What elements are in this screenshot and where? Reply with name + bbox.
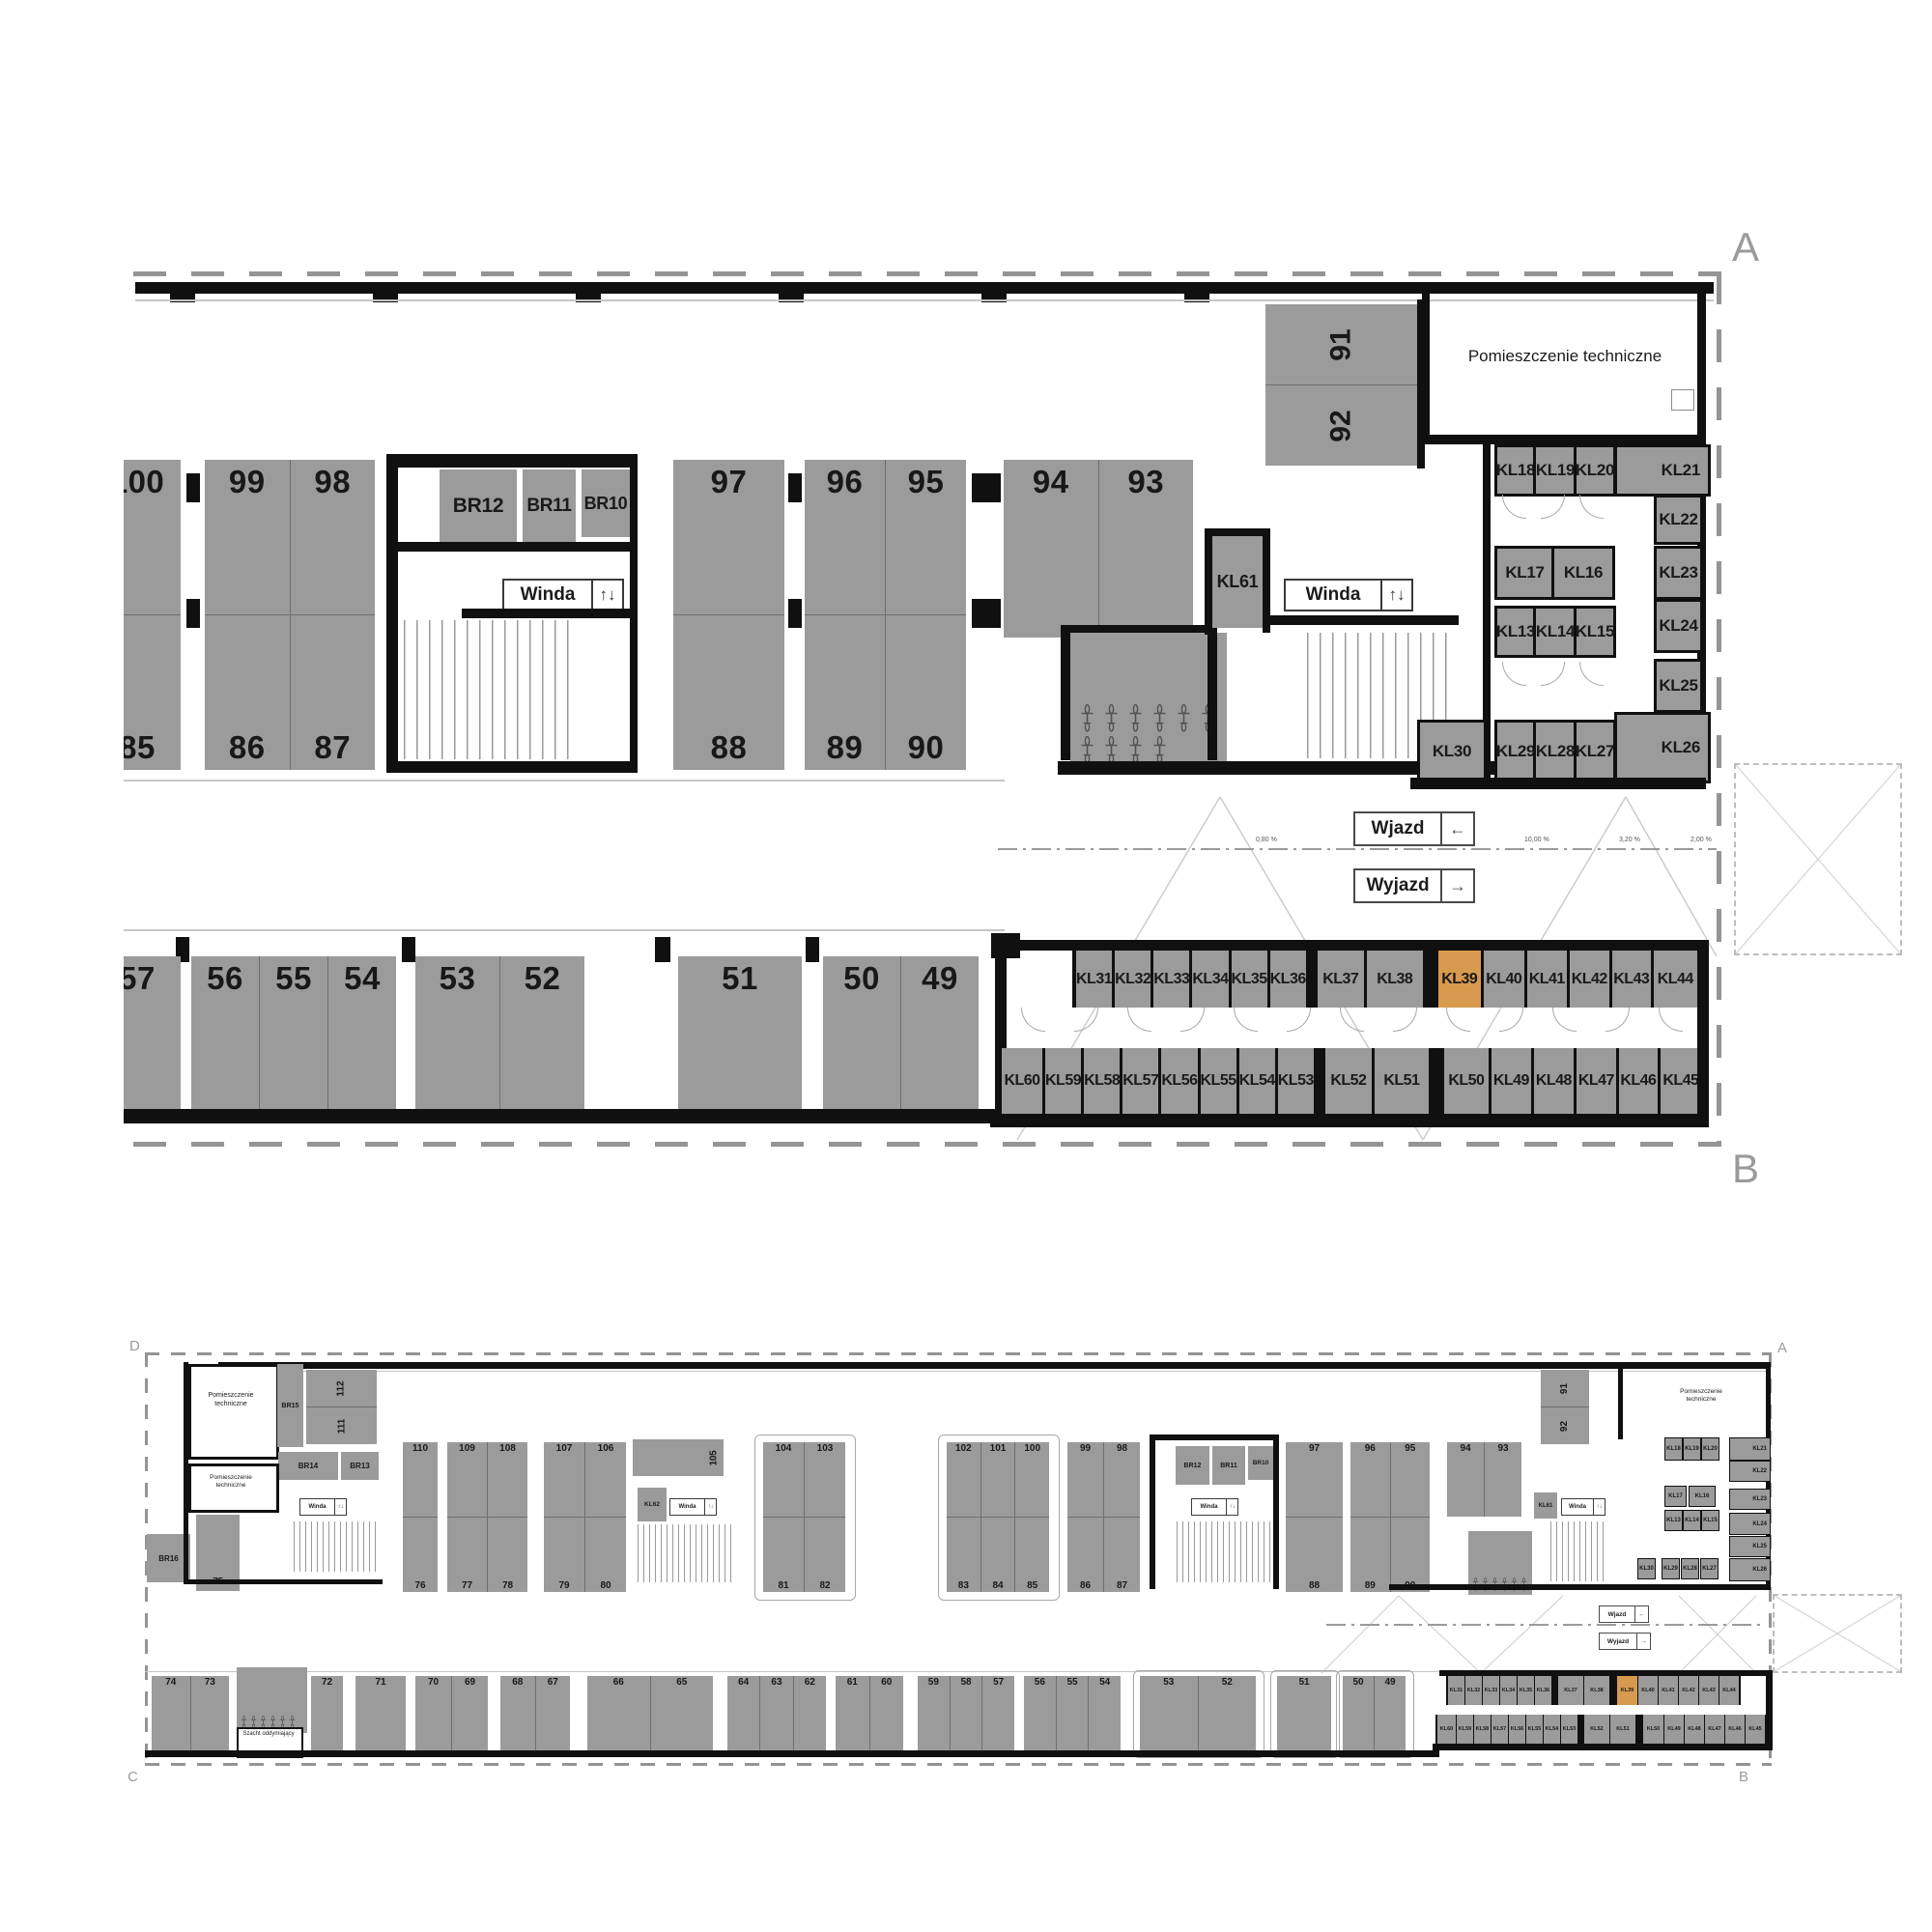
unit-kl18[interactable]: KL18 — [1494, 444, 1537, 497]
cell-kl45[interactable]: KL45 — [1661, 1048, 1701, 1114]
kl-block-bottom-wall — [990, 1114, 1706, 1127]
ramp-percent: 2,00 % — [1690, 837, 1712, 843]
pier — [788, 473, 802, 502]
storage-br12[interactable]: BR12 — [440, 469, 517, 542]
ov-island-109-108: 109108 7778 — [447, 1442, 527, 1592]
cell-kl43[interactable]: KL43 — [1612, 951, 1651, 1008]
unit-kl20[interactable]: KL20 — [1574, 444, 1616, 497]
ov-kl29[interactable]: KL29 — [1662, 1558, 1680, 1579]
ov-kl30[interactable]: KL30 — [1637, 1558, 1656, 1579]
elevator-arrows-icon: ↑↓ — [334, 1499, 346, 1515]
ov-br14[interactable]: BR14 — [278, 1452, 338, 1480]
cell-89[interactable]: 89 — [1350, 1518, 1390, 1592]
cell-kl44[interactable]: KL44 — [1654, 951, 1697, 1008]
cell-73[interactable]: 73 — [190, 1676, 230, 1750]
cell-69[interactable]: 69 — [451, 1676, 488, 1750]
cell-54[interactable]: 54 — [1088, 1676, 1121, 1750]
ov-kl-row-upper: KL31KL32KL33KL34KL35KL36KL37KL38KL39KL40… — [1446, 1676, 1741, 1705]
cell-63[interactable]: 63 — [759, 1676, 792, 1750]
cell-87[interactable]: 87 — [290, 615, 376, 770]
stall-91[interactable]: 91 — [1265, 304, 1417, 384]
cell-74[interactable]: 74 — [152, 1676, 190, 1750]
cell-94[interactable]: 94 — [1447, 1442, 1484, 1517]
stall-label: 112 — [336, 1380, 347, 1396]
cell-kl59[interactable]: KL59 — [1045, 1048, 1081, 1114]
ov-b-50-49: 5049 — [1343, 1676, 1406, 1750]
ov-b-70-69: 7069 — [415, 1676, 488, 1750]
door-arc — [1446, 1008, 1470, 1032]
cell-kl42[interactable]: KL42 — [1679, 1676, 1698, 1705]
cell-49[interactable]: 49 — [900, 956, 979, 1109]
cell-kl34[interactable]: KL34 — [1192, 951, 1228, 1008]
ov-stall-111[interactable]: 111 — [306, 1406, 377, 1444]
elevator-arrows-icon: ↑↓ — [1380, 581, 1411, 610]
door-arc — [1541, 495, 1565, 519]
section-letter-b: B — [1732, 1146, 1759, 1192]
cell-84[interactable]: 84 — [980, 1518, 1015, 1592]
storage-kl61[interactable]: KL61 — [1212, 536, 1263, 628]
cell-kl32[interactable]: KL32 — [1115, 951, 1151, 1008]
cell-kl41[interactable]: KL41 — [1659, 1676, 1678, 1705]
ov-b-56-54: 565554 — [1024, 1676, 1121, 1750]
core-wall — [1205, 528, 1270, 536]
cell-kl57[interactable]: KL57 — [1122, 1048, 1158, 1114]
cell-kl49[interactable]: KL49 — [1664, 1715, 1684, 1744]
stall-island-91-92: 91 92 — [1265, 304, 1417, 466]
cell-kl39[interactable]: KL39 — [1438, 951, 1481, 1008]
cell-51[interactable]: 51 — [1277, 1676, 1331, 1750]
ov-stall-92[interactable]: 92 — [1541, 1406, 1589, 1444]
ov-entry-gate[interactable]: Wjazd ← — [1599, 1605, 1649, 1623]
cell-76[interactable]: 76 — [403, 1518, 438, 1592]
cell-99[interactable]: 99 — [1067, 1442, 1103, 1517]
cell-kl32[interactable]: KL32 — [1465, 1676, 1482, 1705]
cell-107[interactable]: 107 — [544, 1442, 584, 1517]
cell-kl53[interactable]: KL53 — [1561, 1715, 1577, 1744]
cell-80[interactable]: 80 — [584, 1518, 626, 1592]
cell-kl35[interactable]: KL35 — [1232, 951, 1267, 1008]
cell-kl51[interactable]: KL51 — [1375, 1048, 1429, 1114]
cell-101[interactable]: 101 — [980, 1442, 1015, 1517]
ov-b-64-62: 646362 — [727, 1676, 826, 1750]
cell-89[interactable]: 89 — [805, 615, 885, 770]
door-arc — [1502, 662, 1526, 686]
section-letter-b-ov: B — [1739, 1769, 1748, 1785]
cell-kl44[interactable]: KL44 — [1719, 1676, 1739, 1705]
cell-50[interactable]: 50 — [1343, 1676, 1374, 1750]
ov-br11[interactable]: BR11 — [1212, 1446, 1245, 1485]
ov-tech-room-1-label: Pomieszczenie techniczne — [197, 1391, 265, 1408]
door-arc — [1074, 1008, 1098, 1032]
ov-b-51: 51 — [1277, 1676, 1331, 1750]
exit-arrow-icon: → — [1440, 870, 1473, 901]
ov-dash-bottom — [145, 1763, 1772, 1766]
unit-kl28[interactable]: KL28 — [1533, 720, 1577, 783]
cell-kl35[interactable]: KL35 — [1518, 1676, 1534, 1705]
ov-kl22[interactable]: KL22 — [1729, 1461, 1771, 1482]
bike-room-wall — [1207, 625, 1217, 760]
ov-kl28[interactable]: KL28 — [1681, 1558, 1699, 1579]
ramp-centerline — [998, 848, 1717, 850]
wall-fixture-icon — [1671, 389, 1694, 411]
cell-51[interactable]: 51 — [678, 956, 802, 1109]
unit-kl17[interactable]: KL17 — [1494, 546, 1555, 600]
cell-kl37[interactable]: KL37 — [1318, 951, 1364, 1008]
cell-kl33[interactable]: KL33 — [1483, 1676, 1499, 1705]
cell-53[interactable]: 53 — [1140, 1676, 1198, 1750]
cell-77[interactable]: 77 — [447, 1518, 487, 1592]
cell-kl36[interactable]: KL36 — [1270, 951, 1306, 1008]
ov-kl18[interactable]: KL18 — [1664, 1437, 1683, 1461]
cell-56[interactable]: 56 — [191, 956, 259, 1109]
cell-kl46[interactable]: KL46 — [1619, 1048, 1658, 1114]
stall-label: 92 — [1560, 1420, 1571, 1431]
cell-86[interactable]: 86 — [1067, 1518, 1103, 1592]
pier — [806, 937, 819, 962]
cell-70[interactable]: 70 — [415, 1676, 451, 1750]
cell-99[interactable]: 99 — [205, 460, 290, 614]
cell-kl53[interactable]: KL53 — [1278, 1048, 1314, 1114]
cell-59[interactable]: 59 — [918, 1676, 950, 1750]
cell-64[interactable]: 64 — [727, 1676, 759, 1750]
cell-79[interactable]: 79 — [544, 1518, 584, 1592]
cell-104[interactable]: 104 — [763, 1442, 804, 1517]
ov-tech-room-3-label: Pomieszczenie techniczne — [1669, 1388, 1733, 1405]
ov-core3-wall — [1150, 1435, 1279, 1440]
elevator-label: Winda — [300, 1499, 334, 1515]
ov-br12[interactable]: BR12 — [1176, 1446, 1209, 1485]
bike-room-wall — [1061, 625, 1215, 633]
pier — [972, 599, 1001, 628]
cell-kl41[interactable]: KL41 — [1527, 951, 1567, 1008]
cell-54[interactable]: 54 — [327, 956, 396, 1109]
door-arc — [1021, 1008, 1045, 1032]
ov-br13[interactable]: BR13 — [341, 1452, 379, 1480]
ramp-outside-box — [1734, 763, 1902, 955]
cell-kl54[interactable]: KL54 — [1544, 1715, 1560, 1744]
cell-81[interactable]: 81 — [763, 1518, 804, 1592]
elevator-label: Winda — [1192, 1499, 1226, 1515]
cell-68[interactable]: 68 — [500, 1676, 535, 1750]
unit-kl23[interactable]: KL23 — [1654, 546, 1703, 600]
core-wall — [1263, 536, 1270, 633]
corridor-arcs — [1494, 662, 1610, 705]
cell-65[interactable]: 65 — [650, 1676, 714, 1750]
cell-kl39[interactable]: KL39 — [1617, 1676, 1637, 1705]
wall-spacer — [1552, 1676, 1557, 1705]
cell-kl47[interactable]: KL47 — [1705, 1715, 1724, 1744]
ov-kl26[interactable]: KL26 — [1729, 1558, 1771, 1581]
ov-stall-105[interactable]: 105 — [633, 1439, 724, 1476]
unit-kl24[interactable]: KL24 — [1654, 599, 1703, 653]
ov-core3-wall — [1273, 1435, 1279, 1589]
cell-kl52[interactable]: KL52 — [1584, 1715, 1609, 1744]
ov-kl-right-wall — [1766, 1670, 1773, 1750]
ov-island-97: 97 88 — [1286, 1442, 1343, 1592]
bicycle-icon — [1128, 736, 1143, 764]
ov-stalls-91-92: 91 92 — [1541, 1370, 1589, 1444]
cell-108[interactable]: 108 — [487, 1442, 527, 1517]
cell-kl55[interactable]: KL55 — [1201, 1048, 1236, 1114]
ov-kl20[interactable]: KL20 — [1701, 1437, 1719, 1461]
cell-102[interactable]: 102 — [947, 1442, 980, 1517]
cell-kl47[interactable]: KL47 — [1577, 1048, 1616, 1114]
cell-kl45[interactable]: KL45 — [1746, 1715, 1765, 1744]
entry-arrow-icon: ← — [1634, 1606, 1648, 1622]
ov-kl62[interactable]: KL62 — [638, 1488, 667, 1521]
door-arc — [1234, 1008, 1258, 1032]
cell-93[interactable]: 93 — [1484, 1442, 1521, 1517]
elevator-label: Winda — [670, 1499, 704, 1515]
cell-88[interactable]: 88 — [1286, 1518, 1343, 1592]
bicycle-icon — [1104, 736, 1119, 764]
kl-block-top-wall — [995, 940, 1706, 951]
cell-85[interactable]: 85 — [124, 615, 181, 770]
unit-kl21[interactable]: KL21 — [1614, 444, 1711, 497]
cell-kl57[interactable]: KL57 — [1492, 1715, 1508, 1744]
cell-kl46[interactable]: KL46 — [1725, 1715, 1745, 1744]
cell-96[interactable]: 96 — [1350, 1442, 1390, 1517]
cell-97[interactable]: 97 — [673, 460, 784, 614]
ov-b-74-73: 7473 — [152, 1676, 229, 1750]
cell-kl48[interactable]: KL48 — [1685, 1715, 1704, 1744]
corridor-arcs — [1494, 495, 1610, 533]
cell-67[interactable]: 67 — [535, 1676, 571, 1750]
door-arc — [1393, 1008, 1417, 1032]
cell-82[interactable]: 82 — [804, 1518, 845, 1592]
tech-room-wall — [1422, 435, 1490, 444]
ov-kl24[interactable]: KL24 — [1729, 1513, 1771, 1535]
cell-kl60[interactable]: KL60 — [1437, 1715, 1456, 1744]
cell-kl55[interactable]: KL55 — [1526, 1715, 1543, 1744]
cell-kl49[interactable]: KL49 — [1492, 1048, 1531, 1114]
cell-kl37[interactable]: KL37 — [1558, 1676, 1583, 1705]
ov-kl23[interactable]: KL23 — [1729, 1489, 1771, 1510]
elevator-arrows-icon: ↑↓ — [1593, 1499, 1605, 1515]
cell-58[interactable]: 58 — [950, 1676, 982, 1750]
door-arc — [1180, 1008, 1205, 1032]
cell-86[interactable]: 86 — [205, 615, 290, 770]
cell-55[interactable]: 55 — [259, 956, 327, 1109]
cell-78[interactable]: 78 — [487, 1518, 527, 1592]
stall-island-96-95: 9695 8990 — [805, 460, 966, 770]
stall-label: 105 — [709, 1450, 720, 1465]
ov-top-wall — [218, 1362, 1771, 1369]
cell-96[interactable]: 96 — [805, 460, 885, 614]
ov-kl27[interactable]: KL27 — [1700, 1558, 1719, 1579]
unit-kl16[interactable]: KL16 — [1551, 546, 1615, 600]
cell-62[interactable]: 62 — [793, 1676, 826, 1750]
unit-kl14[interactable]: KL14 — [1533, 606, 1577, 658]
cell-93[interactable]: 93 — [1098, 460, 1194, 638]
cell-71[interactable]: 71 — [355, 1676, 406, 1750]
ov-kl14[interactable]: KL14 — [1683, 1510, 1701, 1531]
ov-elevator-1[interactable]: Winda ↑↓ — [299, 1498, 347, 1516]
ov-exit-gate[interactable]: Wyjazd → — [1599, 1633, 1651, 1650]
bike-room — [1070, 633, 1227, 774]
cell-kl38[interactable]: KL38 — [1584, 1676, 1609, 1705]
cell-kl52[interactable]: KL52 — [1325, 1048, 1372, 1114]
cell-110[interactable]: 110 — [403, 1442, 438, 1517]
cell-kl40[interactable]: KL40 — [1484, 951, 1524, 1008]
cell-kl31[interactable]: KL31 — [1448, 1676, 1464, 1705]
wall-spacer — [1432, 1048, 1441, 1114]
exit-gate[interactable]: Wyjazd → — [1353, 868, 1475, 903]
cell-kl60[interactable]: KL60 — [1002, 1048, 1042, 1114]
unit-kl19[interactable]: KL19 — [1533, 444, 1577, 497]
ov-island-104-103: 104103 8182 — [763, 1442, 845, 1592]
cell-kl33[interactable]: KL33 — [1153, 951, 1189, 1008]
cell-60[interactable]: 60 — [869, 1676, 904, 1750]
door-arc — [1659, 1008, 1683, 1032]
cell-57[interactable]: 57 — [124, 956, 181, 1109]
elevator-arrows-icon: ↑↓ — [1226, 1499, 1237, 1515]
cell-98[interactable]: 98 — [1103, 1442, 1140, 1517]
cell-55[interactable]: 55 — [1056, 1676, 1089, 1750]
cell-103[interactable]: 103 — [804, 1442, 845, 1517]
overview-plan: D A C B Pomieszczenie techniczne BR15 11… — [124, 1338, 1793, 1797]
cell-52[interactable]: 52 — [1198, 1676, 1257, 1750]
unit-kl13[interactable]: KL13 — [1494, 606, 1537, 658]
unit-kl27[interactable]: KL27 — [1574, 720, 1616, 783]
ov-kl16[interactable]: KL16 — [1689, 1486, 1716, 1507]
entry-label: Wjazd — [1600, 1606, 1634, 1622]
cell-kl56[interactable]: KL56 — [1161, 1048, 1197, 1114]
wall-spacer — [1426, 951, 1435, 1008]
cell-90[interactable]: 90 — [1390, 1518, 1431, 1592]
boundary-dash-top — [133, 271, 1718, 276]
cell-kl43[interactable]: KL43 — [1699, 1676, 1719, 1705]
unit-kl15[interactable]: KL15 — [1574, 606, 1616, 658]
cell-kl40[interactable]: KL40 — [1638, 1676, 1658, 1705]
cell-52[interactable]: 52 — [499, 956, 584, 1109]
pier — [788, 599, 802, 628]
stall-island-51: 51 — [678, 956, 802, 1109]
ov-b-68-67: 6867 — [500, 1676, 570, 1750]
cell-109[interactable]: 109 — [447, 1442, 487, 1517]
cell-kl50[interactable]: KL50 — [1444, 1048, 1489, 1114]
tech-room-label: Pomieszczenie techniczne — [1459, 346, 1671, 368]
ov-stairs-3 — [1177, 1521, 1273, 1582]
ov-stall-112[interactable]: 112 — [306, 1370, 377, 1406]
cell-kl42[interactable]: KL42 — [1570, 951, 1609, 1008]
ov-br15[interactable]: BR15 — [277, 1364, 303, 1447]
ov-wall — [184, 1579, 383, 1584]
cell-kl51[interactable]: KL51 — [1610, 1715, 1635, 1744]
cell-66[interactable]: 66 — [587, 1676, 650, 1750]
cell-kl34[interactable]: KL34 — [1500, 1676, 1517, 1705]
cell-50[interactable]: 50 — [823, 956, 900, 1109]
cell-61[interactable]: 61 — [836, 1676, 869, 1750]
ov-kl17[interactable]: KL17 — [1664, 1486, 1687, 1507]
cell-kl59[interactable]: KL59 — [1457, 1715, 1473, 1744]
kl-corridor — [1007, 1008, 1697, 1048]
cell-kl38[interactable]: KL38 — [1367, 951, 1423, 1008]
stall-island-100-85: 100 85 — [124, 460, 181, 770]
ov-stall-91[interactable]: 91 — [1541, 1370, 1589, 1406]
cell-100[interactable]: 100 — [1014, 1442, 1049, 1517]
cell-kl48[interactable]: KL48 — [1534, 1048, 1574, 1114]
ov-kl25[interactable]: KL25 — [1729, 1536, 1771, 1557]
ov-elevator-2[interactable]: Winda ↑↓ — [669, 1498, 717, 1516]
elevator-arrows-icon: ↑↓ — [704, 1499, 716, 1515]
stairs-left — [404, 620, 578, 759]
exit-arrow-icon: → — [1636, 1634, 1650, 1649]
cell-kl54[interactable]: KL54 — [1239, 1048, 1275, 1114]
ov-kl21[interactable]: KL21 — [1729, 1437, 1771, 1461]
cell-97[interactable]: 97 — [1286, 1442, 1343, 1517]
unit-kl26[interactable]: KL26 — [1614, 712, 1711, 783]
grid-top-wall — [1483, 435, 1706, 444]
cell-kl50[interactable]: KL50 — [1643, 1715, 1663, 1744]
cell-95[interactable]: 95 — [1390, 1442, 1431, 1517]
storage-br10[interactable]: BR10 — [582, 469, 630, 537]
ov-b-72: 72 — [311, 1676, 343, 1750]
cell-57[interactable]: 57 — [981, 1676, 1014, 1750]
ov-b-71: 71 — [355, 1676, 406, 1750]
cell-106[interactable]: 106 — [584, 1442, 626, 1517]
door-arc — [1541, 662, 1565, 686]
cell-72[interactable]: 72 — [311, 1676, 343, 1750]
storage-br11[interactable]: BR11 — [523, 469, 576, 542]
entry-gate[interactable]: Wjazd ← — [1353, 811, 1475, 846]
cell-83[interactable]: 83 — [947, 1518, 980, 1592]
cell-98[interactable]: 98 — [290, 460, 376, 614]
section-letter-a: A — [1732, 224, 1759, 270]
door-arc — [1499, 1008, 1523, 1032]
elevator-right[interactable]: Winda ↑↓ — [1284, 579, 1413, 611]
cell-94[interactable]: 94 — [1004, 460, 1098, 638]
cell-87[interactable]: 87 — [1103, 1518, 1140, 1592]
ov-wall — [1618, 1367, 1623, 1439]
ov-br10[interactable]: BR10 — [1248, 1446, 1273, 1480]
door-arc — [1579, 662, 1604, 686]
cell-kl31[interactable]: KL31 — [1076, 951, 1112, 1008]
ov-kl13[interactable]: KL13 — [1664, 1510, 1683, 1531]
door-arc — [1552, 1008, 1577, 1032]
cell-88[interactable]: 88 — [673, 615, 784, 770]
cell-90[interactable]: 90 — [885, 615, 966, 770]
ov-kl19[interactable]: KL19 — [1683, 1437, 1701, 1461]
cell-85[interactable]: 85 — [1014, 1518, 1049, 1592]
cell-kl56[interactable]: KL56 — [1509, 1715, 1525, 1744]
cell-49[interactable]: 49 — [1374, 1676, 1406, 1750]
wall-spacer — [1317, 1048, 1322, 1114]
aisle-line — [124, 929, 1005, 931]
cell-95[interactable]: 95 — [885, 460, 966, 614]
ov-island-94-93: 9493 — [1447, 1442, 1521, 1517]
unit-kl29[interactable]: KL29 — [1494, 720, 1537, 783]
stall-92[interactable]: 92 — [1265, 384, 1417, 466]
ov-kl15[interactable]: KL15 — [1701, 1510, 1719, 1531]
unit-kl22[interactable]: KL22 — [1654, 495, 1703, 545]
ov-kl61[interactable]: KL61 — [1534, 1492, 1557, 1519]
pier — [186, 599, 200, 628]
cell-kl58[interactable]: KL58 — [1084, 1048, 1120, 1114]
cell-100[interactable]: 100 — [124, 460, 181, 614]
unit-kl30[interactable]: KL30 — [1417, 720, 1487, 783]
cell-53[interactable]: 53 — [415, 956, 499, 1109]
ov-elevator-3[interactable]: Winda ↑↓ — [1191, 1498, 1238, 1516]
ov-elevator-4[interactable]: Winda ↑↓ — [1561, 1498, 1605, 1516]
floor-plan-page: { "shared": { "winda": "Winda", "wjazd":… — [0, 0, 1932, 1932]
cell-kl58[interactable]: KL58 — [1474, 1715, 1491, 1744]
elevator-left[interactable]: Winda ↑↓ — [502, 579, 624, 611]
cell-kl36[interactable]: KL36 — [1535, 1676, 1551, 1705]
cell-56[interactable]: 56 — [1024, 1676, 1056, 1750]
ov-bottom-wall — [145, 1750, 1439, 1757]
unit-kl25[interactable]: KL25 — [1654, 659, 1703, 713]
